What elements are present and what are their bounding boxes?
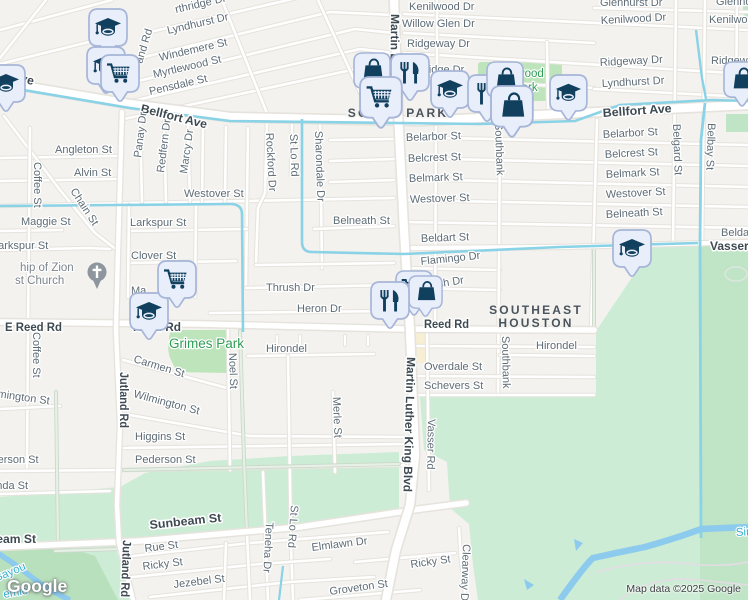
svg-text:Larkspur St: Larkspur St bbox=[0, 240, 48, 252]
svg-text:Higgins St: Higgins St bbox=[135, 431, 185, 443]
svg-text:hip of Zion: hip of Zion bbox=[20, 262, 74, 274]
svg-text:Schevers St: Schevers St bbox=[424, 380, 483, 392]
svg-text:Westover St: Westover St bbox=[410, 192, 470, 206]
svg-text:Southbank: Southbank bbox=[499, 336, 512, 389]
svg-text:Willow Glen Dr: Willow Glen Dr bbox=[402, 18, 475, 30]
svg-text:Grimes Park: Grimes Park bbox=[169, 336, 244, 351]
svg-text:Noel St: Noel St bbox=[226, 353, 239, 389]
svg-text:Beldart St: Beldart St bbox=[421, 231, 470, 245]
svg-text:Vasser Rd: Vasser Rd bbox=[710, 239, 748, 253]
svg-text:Angleton St: Angleton St bbox=[55, 144, 112, 156]
svg-text:Pederson St: Pederson St bbox=[135, 454, 196, 466]
svg-text:Southbank: Southbank bbox=[492, 123, 506, 176]
svg-text:Sharondale Dr: Sharondale Dr bbox=[312, 131, 326, 203]
svg-text:Belneath St: Belneath St bbox=[333, 215, 390, 227]
svg-text:Reed Rd: Reed Rd bbox=[424, 317, 469, 331]
svg-text:Sunbeam St: Sunbeam St bbox=[0, 532, 36, 546]
svg-text:Belcrest St: Belcrest St bbox=[408, 151, 462, 165]
svg-text:Hirondel: Hirondel bbox=[266, 343, 307, 355]
svg-text:Ridgeway Dr: Ridgeway Dr bbox=[407, 38, 470, 50]
svg-text:Beldart St: Beldart St bbox=[721, 227, 748, 239]
svg-text:Heron Dr: Heron Dr bbox=[297, 303, 342, 315]
svg-text:HOUSTON: HOUSTON bbox=[498, 316, 573, 330]
svg-text:St Lo Rd: St Lo Rd bbox=[287, 134, 300, 177]
svg-text:Glenhurst Dr: Glenhurst Dr bbox=[600, 0, 663, 9]
svg-text:Belarbor St: Belarbor St bbox=[406, 130, 461, 144]
svg-text:Belbay St: Belbay St bbox=[703, 123, 717, 170]
svg-text:Pederson St: Pederson St bbox=[0, 454, 39, 466]
svg-text:Belgard St: Belgard St bbox=[670, 124, 684, 176]
svg-text:Glennda: Glennda bbox=[716, 0, 748, 8]
svg-text:Jutland Rd: Jutland Rd bbox=[118, 540, 134, 597]
svg-text:Landa St: Landa St bbox=[0, 480, 28, 492]
svg-text:Thrush Dr: Thrush Dr bbox=[266, 282, 315, 294]
svg-text:Jutland Rd: Jutland Rd bbox=[117, 372, 131, 428]
svg-text:Maggie St: Maggie St bbox=[21, 216, 71, 228]
svg-text:Vasser Rd: Vasser Rd bbox=[424, 419, 437, 470]
svg-text:Coffee St: Coffee St bbox=[31, 162, 43, 208]
svg-text:Merle St: Merle St bbox=[330, 397, 343, 438]
svg-text:Kenilwood Dr: Kenilwood Dr bbox=[709, 14, 748, 26]
svg-text:Sims Bayou: Sims Bayou bbox=[736, 524, 748, 539]
svg-text:st Church: st Church bbox=[15, 275, 64, 287]
svg-text:Hirondel: Hirondel bbox=[536, 340, 577, 352]
svg-text:Larkspur St: Larkspur St bbox=[130, 217, 186, 229]
svg-text:Belmark St: Belmark St bbox=[409, 171, 463, 185]
svg-text:Alvin St: Alvin St bbox=[74, 167, 111, 179]
svg-text:Coffee St: Coffee St bbox=[30, 332, 42, 378]
svg-text:Clearway Dr: Clearway Dr bbox=[458, 544, 472, 600]
svg-text:Overdale St: Overdale St bbox=[424, 361, 482, 373]
svg-text:Westover St: Westover St bbox=[184, 188, 244, 200]
svg-text:Kenilwood Dr: Kenilwood Dr bbox=[409, 1, 475, 13]
svg-text:SOUTHEAST: SOUTHEAST bbox=[489, 303, 583, 317]
